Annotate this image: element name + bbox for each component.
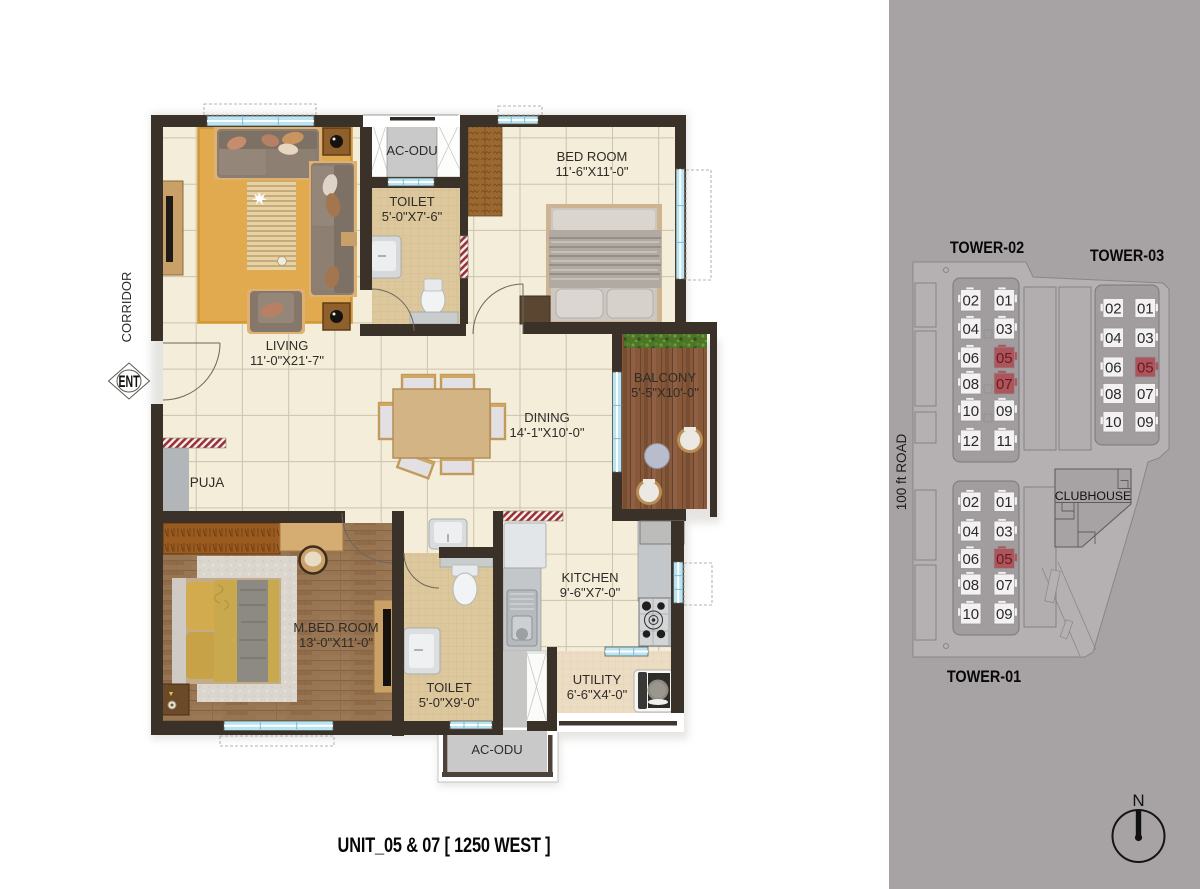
svg-text:09: 09 bbox=[996, 403, 1013, 420]
svg-text:07: 07 bbox=[996, 376, 1013, 393]
svg-text:02: 02 bbox=[962, 293, 979, 310]
svg-text:11'-6"X11'-0": 11'-6"X11'-0" bbox=[556, 164, 629, 179]
svg-text:UTILITY: UTILITY bbox=[573, 672, 622, 687]
svg-text:DINING: DINING bbox=[524, 410, 570, 425]
svg-text:08: 08 bbox=[962, 376, 979, 393]
svg-text:PUJA: PUJA bbox=[190, 475, 225, 490]
svg-text:LIVING: LIVING bbox=[266, 338, 309, 353]
svg-text:AC-ODU: AC-ODU bbox=[386, 143, 437, 158]
svg-text:11'-0"X21'-7": 11'-0"X21'-7" bbox=[250, 353, 324, 368]
svg-text:TOWER-01: TOWER-01 bbox=[947, 668, 1022, 686]
svg-text:06: 06 bbox=[962, 350, 979, 367]
svg-text:5'-5"X10'-0": 5'-5"X10'-0" bbox=[631, 385, 699, 400]
svg-text:05: 05 bbox=[1137, 359, 1154, 376]
svg-text:BALCONY: BALCONY bbox=[634, 370, 696, 385]
svg-text:14'-1"X10'-0": 14'-1"X10'-0" bbox=[510, 425, 585, 440]
svg-text:05: 05 bbox=[996, 551, 1013, 568]
svg-text:CLUBHOUSE: CLUBHOUSE bbox=[1055, 489, 1132, 503]
svg-text:TOILET: TOILET bbox=[389, 194, 434, 209]
svg-text:KITCHEN: KITCHEN bbox=[561, 570, 618, 585]
svg-text:06: 06 bbox=[962, 551, 979, 568]
svg-text:CORRIDOR: CORRIDOR bbox=[119, 272, 134, 343]
svg-text:11: 11 bbox=[997, 433, 1013, 450]
svg-text:04: 04 bbox=[962, 321, 979, 338]
svg-text:02: 02 bbox=[1105, 300, 1122, 317]
svg-text:10: 10 bbox=[1105, 414, 1122, 431]
svg-text:AC-ODU: AC-ODU bbox=[471, 742, 522, 757]
svg-text:10: 10 bbox=[962, 403, 979, 420]
svg-text:10: 10 bbox=[962, 606, 979, 623]
svg-text:12: 12 bbox=[962, 433, 979, 450]
svg-text:TOWER-03: TOWER-03 bbox=[1090, 247, 1165, 265]
svg-text:UNIT_05 & 07 [ 1250 WEST ]: UNIT_05 & 07 [ 1250 WEST ] bbox=[338, 834, 551, 858]
svg-text:N: N bbox=[1132, 791, 1144, 810]
svg-text:08: 08 bbox=[1105, 386, 1122, 403]
svg-text:BED ROOM: BED ROOM bbox=[557, 149, 628, 164]
svg-text:06: 06 bbox=[1105, 359, 1122, 376]
svg-text:04: 04 bbox=[962, 523, 979, 540]
svg-text:TOWER-02: TOWER-02 bbox=[950, 239, 1025, 257]
svg-text:03: 03 bbox=[1137, 330, 1154, 347]
svg-text:TOILET: TOILET bbox=[426, 680, 471, 695]
svg-text:07: 07 bbox=[996, 577, 1013, 594]
svg-text:9'-6"X7'-0": 9'-6"X7'-0" bbox=[560, 585, 621, 600]
svg-text:03: 03 bbox=[996, 321, 1013, 338]
svg-text:5'-0"X9'-0": 5'-0"X9'-0" bbox=[419, 695, 480, 710]
svg-text:08: 08 bbox=[962, 577, 979, 594]
svg-text:100 ft ROAD: 100 ft ROAD bbox=[894, 433, 909, 510]
svg-text:13'-0"X11'-0": 13'-0"X11'-0" bbox=[299, 635, 373, 650]
svg-text:05: 05 bbox=[996, 350, 1013, 367]
svg-text:02: 02 bbox=[962, 494, 979, 511]
svg-text:01: 01 bbox=[996, 494, 1013, 511]
svg-text:ENT: ENT bbox=[118, 371, 139, 390]
svg-text:6'-6"X4'-0": 6'-6"X4'-0" bbox=[567, 687, 628, 702]
svg-text:5'-0"X7'-6": 5'-0"X7'-6" bbox=[382, 209, 443, 224]
svg-text:M.BED ROOM: M.BED ROOM bbox=[293, 620, 378, 635]
svg-text:01: 01 bbox=[1137, 300, 1154, 317]
svg-text:01: 01 bbox=[996, 293, 1013, 310]
svg-text:04: 04 bbox=[1105, 330, 1122, 347]
svg-text:09: 09 bbox=[1137, 414, 1154, 431]
svg-text:07: 07 bbox=[1137, 386, 1154, 403]
svg-text:03: 03 bbox=[996, 523, 1013, 540]
svg-text:09: 09 bbox=[996, 606, 1013, 623]
